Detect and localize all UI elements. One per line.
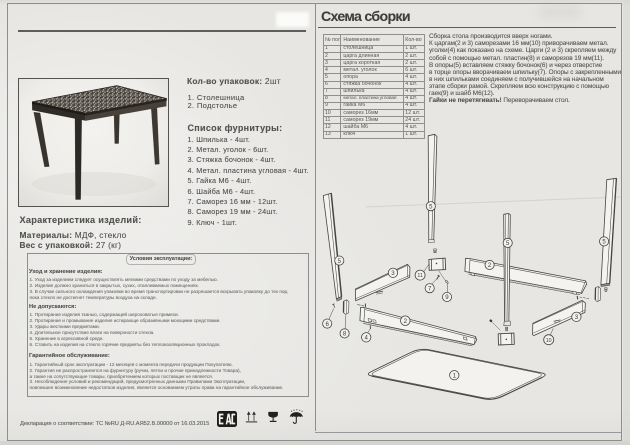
svg-text:6: 6 — [326, 321, 330, 328]
svg-text:4: 4 — [365, 335, 369, 342]
svg-text:7: 7 — [428, 285, 432, 292]
svg-text:10: 10 — [546, 338, 552, 344]
svg-text:3: 3 — [575, 314, 579, 321]
svg-text:5: 5 — [506, 240, 510, 247]
svg-text:11: 11 — [417, 273, 423, 279]
